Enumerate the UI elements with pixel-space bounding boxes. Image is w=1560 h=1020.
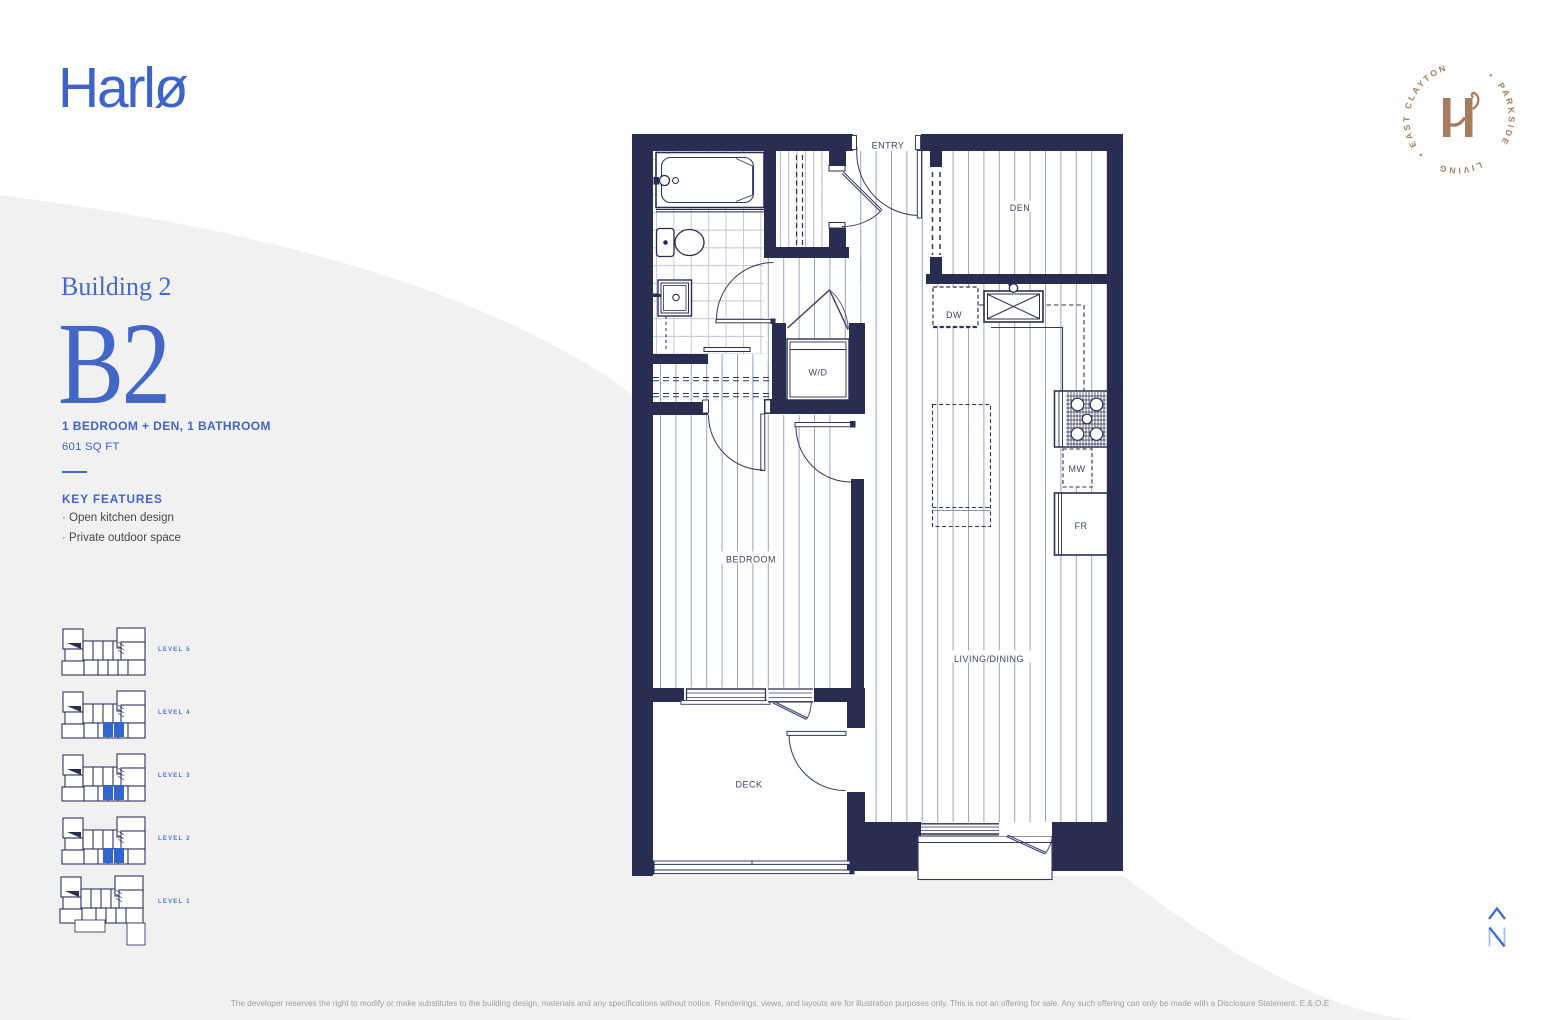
svg-text:DEN: DEN [1010,203,1031,213]
svg-text:LEVEL 3: LEVEL 3 [158,773,191,779]
svg-text:LEVEL 4: LEVEL 4 [158,710,191,716]
svg-text:LEVEL 2: LEVEL 2 [158,836,191,842]
svg-text:LIVING/DINING: LIVING/DINING [954,654,1024,664]
svg-text:•: • [1414,149,1425,160]
svg-text:LEVEL 1: LEVEL 1 [158,899,191,905]
svg-text:•: • [1487,70,1497,81]
svg-text:PARKSIDE: PARKSIDE [1496,81,1517,149]
svg-text:EAST CLAYTON: EAST CLAYTON [1401,62,1449,149]
svg-text:W/D: W/D [809,368,828,378]
svg-text:ENTRY: ENTRY [872,141,905,151]
svg-text:MW: MW [1069,464,1086,474]
svg-text:FR: FR [1075,521,1088,531]
svg-text:LIVING: LIVING [1436,160,1484,176]
svg-text:DECK: DECK [735,780,762,790]
svg-text:BEDROOM: BEDROOM [726,555,776,565]
svg-text:DW: DW [946,310,962,320]
svg-text:LEVEL 5: LEVEL 5 [158,647,191,653]
